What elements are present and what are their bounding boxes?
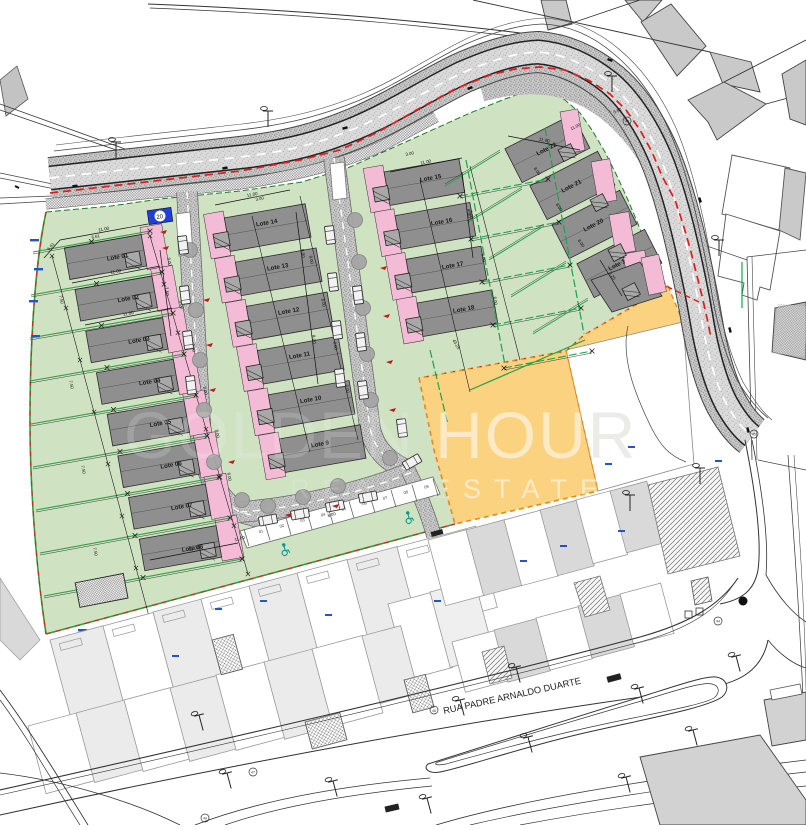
svg-text:46: 46 bbox=[625, 120, 629, 124]
svg-text:48: 48 bbox=[432, 709, 436, 713]
svg-text:47: 47 bbox=[251, 771, 255, 775]
svg-text:45: 45 bbox=[752, 433, 756, 437]
svg-text:44: 44 bbox=[716, 620, 720, 624]
svg-text:49: 49 bbox=[203, 817, 207, 821]
